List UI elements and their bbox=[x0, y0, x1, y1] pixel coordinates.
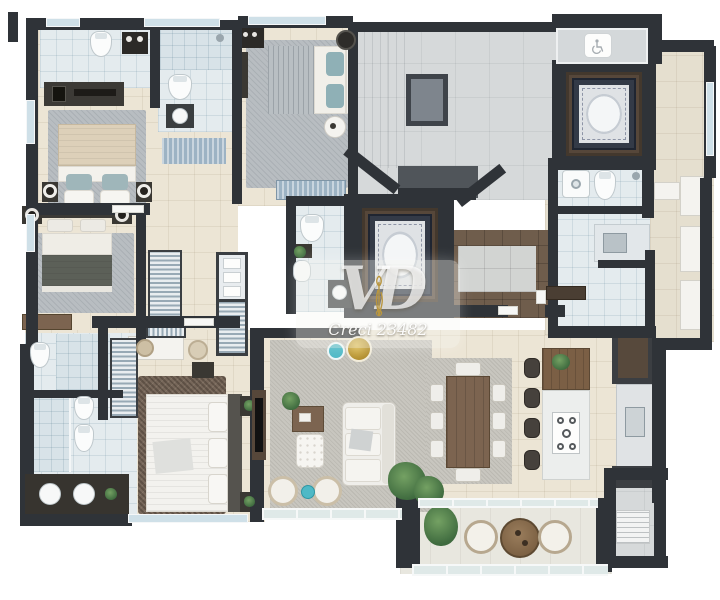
entry-door bbox=[536, 290, 546, 304]
table-cup bbox=[522, 540, 528, 546]
wood-coffee-table bbox=[292, 406, 324, 432]
tv-screen bbox=[255, 398, 263, 452]
heater-knob bbox=[137, 36, 143, 42]
folded-linen bbox=[223, 286, 241, 297]
bar-stool bbox=[524, 388, 540, 408]
round-side-table bbox=[336, 30, 356, 50]
wall-segment bbox=[25, 390, 123, 398]
wall-segment bbox=[548, 326, 656, 338]
bar-stool bbox=[524, 450, 540, 470]
table-books bbox=[299, 413, 311, 422]
laundry-counter bbox=[594, 224, 650, 262]
burner bbox=[557, 417, 564, 424]
shower-head bbox=[216, 34, 224, 42]
balcony-glass-wall bbox=[418, 498, 598, 508]
kitchen-counter bbox=[616, 384, 654, 468]
floor-plan-canvas: VD Creci 23482 bbox=[0, 0, 720, 600]
sofa-throw bbox=[349, 429, 374, 452]
wall-segment bbox=[645, 250, 655, 338]
bed-blanket bbox=[42, 255, 112, 286]
wardrobe-shelves bbox=[219, 255, 245, 299]
bed-foot-fold bbox=[42, 286, 112, 292]
bed-pillow bbox=[208, 474, 228, 504]
bed-pillow bbox=[208, 438, 228, 468]
window bbox=[128, 514, 248, 523]
wall-segment bbox=[150, 24, 160, 108]
wall-segment bbox=[20, 514, 132, 526]
bed-throw bbox=[152, 438, 193, 474]
wall-segment bbox=[552, 206, 644, 214]
window bbox=[248, 16, 326, 25]
bar-stool bbox=[524, 418, 540, 438]
cooktop bbox=[552, 412, 580, 454]
plant bbox=[244, 496, 255, 507]
window bbox=[144, 18, 220, 27]
foyer-door bbox=[498, 306, 518, 315]
laundry-tub bbox=[603, 233, 627, 253]
balcony-planter-wall bbox=[396, 494, 420, 568]
bed-pillow bbox=[80, 219, 106, 232]
wall-segment bbox=[548, 158, 558, 328]
bar-stool bbox=[524, 358, 540, 378]
balcony-armchair bbox=[538, 520, 572, 554]
dining-chair bbox=[430, 440, 444, 458]
sliding-glass-doors bbox=[262, 508, 402, 520]
washer bbox=[562, 170, 590, 198]
wall-segment bbox=[548, 158, 656, 170]
burner bbox=[557, 443, 564, 450]
wall-segment bbox=[606, 556, 668, 568]
bed-pillow bbox=[208, 402, 228, 432]
washer-door bbox=[571, 179, 581, 189]
dining-chair bbox=[455, 468, 481, 482]
wheelchair-icon bbox=[590, 38, 606, 54]
vanity-tray bbox=[74, 89, 116, 96]
wall-segment bbox=[398, 188, 476, 200]
heater-knob bbox=[126, 36, 132, 42]
wall-segment bbox=[232, 24, 242, 204]
watermark-license: Creci 23482 bbox=[328, 320, 427, 339]
table-cup bbox=[515, 530, 521, 536]
nightstand-lamp bbox=[43, 184, 57, 198]
carpet-oval bbox=[579, 85, 629, 143]
wall-segment bbox=[352, 22, 558, 32]
burner bbox=[569, 417, 576, 424]
window bbox=[26, 100, 35, 144]
shower-head bbox=[632, 172, 640, 180]
water-heater bbox=[122, 32, 148, 54]
wall-segment bbox=[648, 14, 662, 64]
island-wood-top bbox=[542, 348, 590, 390]
bed-pillow bbox=[102, 174, 128, 190]
double-vanity bbox=[25, 474, 129, 514]
bed-bedroom-1 bbox=[58, 124, 136, 210]
door-opening bbox=[112, 205, 144, 213]
bed-pillow bbox=[326, 52, 344, 76]
foyer-floor-mat bbox=[458, 246, 536, 292]
wall-segment bbox=[604, 468, 616, 568]
accessible-plate bbox=[584, 33, 612, 58]
laundry-basket bbox=[136, 339, 154, 357]
gold-ornament-icon bbox=[370, 274, 388, 318]
stair-steps bbox=[356, 32, 406, 168]
bed-pillow bbox=[326, 84, 344, 108]
dining-chair bbox=[430, 384, 444, 402]
vessel-sink bbox=[39, 483, 61, 505]
plant bbox=[282, 392, 300, 410]
tv-knob bbox=[243, 32, 248, 37]
flower-vase bbox=[552, 354, 570, 370]
rug-corridor-runner bbox=[162, 138, 226, 164]
closet-dresser bbox=[192, 362, 214, 378]
stair-void bbox=[406, 74, 448, 126]
folded-linen bbox=[223, 272, 241, 283]
vanity-sink bbox=[52, 86, 66, 102]
tufted-ottoman bbox=[296, 434, 324, 468]
decor-item bbox=[330, 123, 336, 129]
wall-segment bbox=[92, 316, 240, 328]
balcony-armchair bbox=[464, 520, 498, 554]
wall-segment bbox=[654, 440, 666, 568]
dining-chair bbox=[430, 412, 444, 430]
counter-sink bbox=[625, 407, 645, 437]
nightstand-lamp bbox=[137, 184, 151, 198]
wall-segment bbox=[552, 14, 654, 28]
watermark: VD Creci 23482 bbox=[296, 260, 460, 348]
burner bbox=[569, 443, 576, 450]
wall-segment bbox=[286, 196, 358, 206]
bed-bedroom-2 bbox=[42, 210, 112, 292]
bed-pillow bbox=[66, 174, 92, 190]
dining-chair bbox=[492, 412, 506, 430]
wall-segment bbox=[700, 178, 712, 346]
bed-master bbox=[146, 394, 242, 512]
bed-sheet bbox=[42, 233, 112, 255]
vessel-sink bbox=[73, 483, 95, 505]
dining-chair bbox=[492, 440, 506, 458]
window bbox=[26, 214, 35, 252]
wall-segment bbox=[598, 260, 652, 268]
dining-table bbox=[446, 376, 490, 468]
service-appliance bbox=[616, 510, 650, 544]
wall-segment bbox=[26, 18, 38, 344]
round-side-table bbox=[324, 116, 346, 138]
vanity-counter bbox=[44, 82, 124, 106]
balcony-plant bbox=[424, 506, 458, 546]
wall-segment bbox=[98, 328, 108, 420]
service-counter bbox=[654, 182, 680, 200]
entry-console-table bbox=[546, 286, 586, 300]
shelf-wardrobe bbox=[216, 252, 248, 356]
door-opening bbox=[184, 318, 214, 326]
pouf bbox=[188, 340, 208, 360]
balcony-round-table bbox=[500, 518, 540, 558]
dining-chair bbox=[492, 384, 506, 402]
folded-linen bbox=[223, 258, 241, 269]
sofa-cushion bbox=[345, 459, 381, 482]
plant bbox=[105, 488, 117, 500]
glass-railing bbox=[412, 564, 608, 576]
wall-segment bbox=[8, 12, 18, 42]
tall-cabinet bbox=[612, 330, 654, 384]
elevator-1-carpet bbox=[572, 78, 636, 150]
rattan-pouf bbox=[268, 476, 298, 506]
window bbox=[46, 18, 80, 27]
vanity-round-sink bbox=[172, 108, 188, 124]
bed-duvet bbox=[268, 46, 314, 114]
bed-pillow bbox=[47, 219, 73, 232]
bed-blanket bbox=[58, 124, 136, 166]
dining-chair bbox=[455, 362, 481, 376]
burner bbox=[562, 429, 571, 438]
bed-suite-2 bbox=[268, 46, 352, 114]
tv-knob bbox=[252, 32, 257, 37]
hanging-wardrobe bbox=[110, 338, 138, 418]
teal-side-table bbox=[301, 485, 315, 499]
sofa-cushion bbox=[345, 407, 381, 430]
plant bbox=[294, 246, 306, 258]
rattan-pouf bbox=[312, 476, 342, 506]
window bbox=[706, 82, 714, 156]
cabinet-front bbox=[618, 336, 648, 378]
